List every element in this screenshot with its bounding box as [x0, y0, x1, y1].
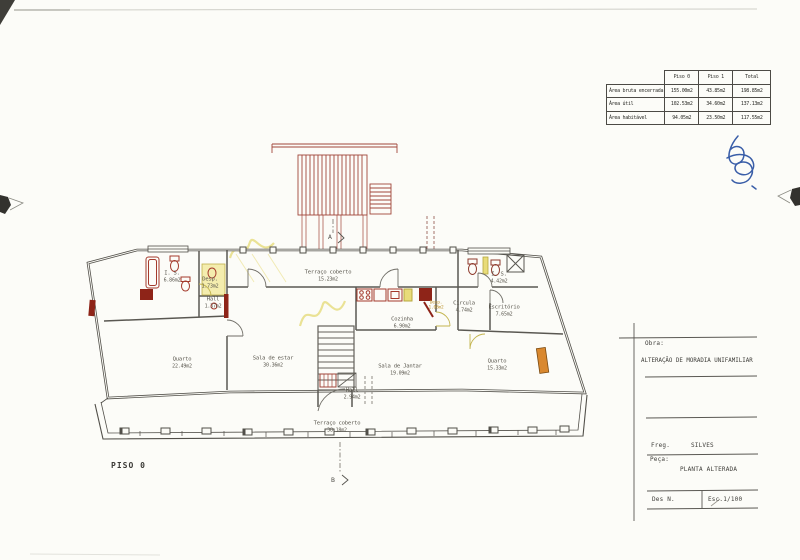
room-label-is-left: I. S. 6.86m2 [164, 271, 181, 284]
area-cell: 94.05m2 [665, 111, 699, 125]
titleblock-freg-label: Freg. [651, 442, 670, 449]
room-area: 22.49m2 [172, 363, 192, 369]
titleblock-des-label: Des N. [652, 496, 675, 503]
room-area: 1.08m2 [428, 306, 443, 311]
room-area: 15.23m2 [305, 276, 352, 282]
area-table-header-row: Piso 0 Piso 1 Total [607, 71, 771, 85]
room-label-terraco-bottom: Terraço coberto 38.18m2 [314, 421, 361, 434]
room-name: Hall [205, 297, 222, 304]
section-lines [333, 216, 434, 485]
area-cell: 155.00m2 [665, 84, 699, 98]
room-label-desp-left: Desp. 1.73m2 [202, 277, 219, 290]
table-row: Área útil 102.53m2 34.60m2 137.13m2 [607, 98, 771, 112]
room-name: I. S. [164, 271, 181, 278]
titleblock-freg-value: SILVES [691, 442, 714, 449]
shower-icon [507, 255, 524, 272]
room-name: Quarto [172, 357, 192, 364]
titleblock-peca-label: Peça: [650, 456, 669, 463]
room-label-desp-kitchen: Desp. 1.08m2 [428, 301, 443, 312]
table-row: Área bruta encerrada 155.00m2 43.85m2 19… [607, 84, 771, 98]
area-cell: 198.85m2 [733, 84, 771, 98]
room-name: Sala de estar [253, 356, 293, 363]
scanned-floor-plan-page: Piso 0 Piso 1 Total Área bruta encerrada… [0, 0, 800, 560]
room-name: Sala de Jantar [378, 364, 422, 371]
room-area: 1.73m2 [202, 283, 219, 289]
title-block-lines [619, 323, 758, 521]
room-name: Terraço coberto [305, 270, 352, 277]
room-label-is-right: I. S. 4.42m2 [491, 272, 508, 285]
window-orange [536, 347, 548, 373]
room-area: 4.74m2 [453, 307, 475, 313]
room-name: I. S. [491, 272, 508, 279]
room-area: 2.94m2 [344, 394, 361, 400]
area-row-label: Área bruta encerrada [607, 84, 665, 98]
room-area: 19.09m2 [378, 370, 422, 376]
area-table-header-total: Total [733, 71, 771, 85]
section-marker-b: B [331, 476, 335, 484]
room-label-sala-estar: Sala de estar 30.36m2 [253, 356, 293, 369]
pergola-structure [272, 144, 397, 250]
area-row-label: Área útil [607, 98, 665, 112]
room-name: Circula [453, 301, 475, 308]
room-label-hall-left: Hall 1.37m2 [205, 297, 222, 310]
room-name: Desp. [202, 277, 219, 284]
area-cell: 34.60m2 [699, 98, 733, 112]
area-cell: 117.55m2 [733, 111, 771, 125]
room-area: 1.37m2 [205, 303, 222, 309]
area-table-empty-cell [607, 71, 665, 85]
room-area: 30.36m2 [253, 362, 293, 368]
titleblock-obra-label: Obra: [645, 340, 664, 347]
titleblock-peca-value: PLANTA ALTERADA [680, 466, 737, 473]
room-label-quarto-right: Quarto 15.33m2 [487, 359, 507, 372]
area-cell: 102.53m2 [665, 98, 699, 112]
area-cell: 137.13m2 [733, 98, 771, 112]
room-name: Terraço coberto [314, 421, 361, 428]
signature [727, 136, 756, 189]
room-name: Cozinha [391, 317, 413, 324]
room-label-cozinha: Cozinha 6.90m2 [391, 317, 413, 330]
area-cell: 23.50m2 [699, 111, 733, 125]
room-label-hall-bottom: Hall 2.94m2 [344, 388, 361, 401]
area-row-label: Área habitável [607, 111, 665, 125]
section-marker-a: A [328, 233, 332, 241]
room-name: Escritório [488, 305, 519, 312]
room-area: 4.42m2 [491, 278, 508, 284]
room-label-quarto-left: Quarto 22.49m2 [172, 357, 192, 370]
area-cell: 43.85m2 [699, 84, 733, 98]
area-table-header-piso1: Piso 1 [699, 71, 733, 85]
room-label-terraco-top: Terraço coberto 15.23m2 [305, 270, 352, 283]
area-table-header-piso0: Piso 0 [665, 71, 699, 85]
table-row: Área habitável 94.05m2 23.50m2 117.55m2 [607, 111, 771, 125]
floor-label: PISO 0 [111, 461, 146, 470]
room-name: Quarto [487, 359, 507, 366]
room-area: 6.86m2 [164, 277, 181, 283]
titleblock-esc-value: Esc.1/100 [708, 496, 742, 503]
section-b-arrow-icon [342, 475, 348, 485]
area-table: Piso 0 Piso 1 Total Área bruta encerrada… [606, 70, 771, 125]
room-label-circulacao: Circula 4.74m2 [453, 301, 475, 314]
room-area: 6.90m2 [391, 323, 413, 329]
room-label-sala-jantar: Sala de Jantar 19.09m2 [378, 364, 422, 377]
room-label-escritorio: Escritório 7.65m2 [488, 305, 519, 318]
room-name: Hall [344, 388, 361, 395]
yellow-demolition-marks [230, 240, 345, 326]
room-area: 15.33m2 [487, 365, 507, 371]
alteration-red-fills [88, 288, 432, 318]
room-area: 7.65m2 [488, 311, 519, 317]
titleblock-obra-value: ALTERAÇÃO DE MORADIA UNIFAMILIAR [641, 358, 753, 364]
room-area: 38.18m2 [314, 427, 361, 433]
